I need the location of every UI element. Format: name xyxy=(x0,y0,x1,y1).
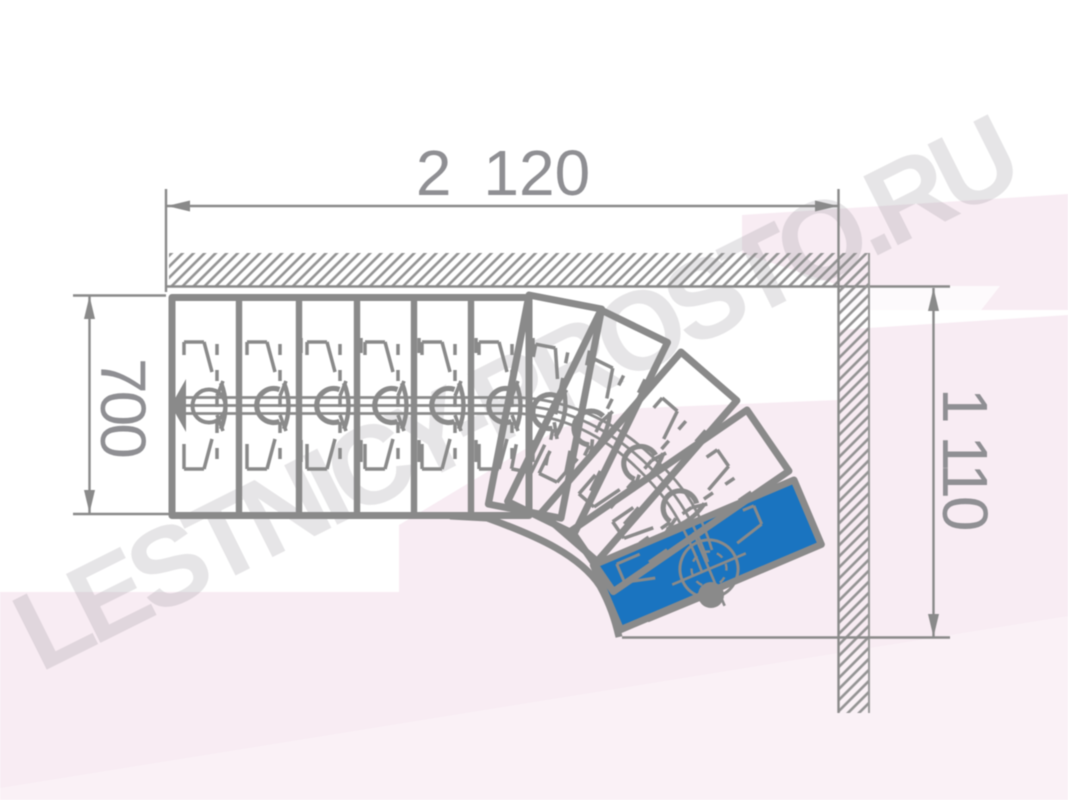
svg-text:700: 700 xyxy=(87,358,159,457)
svg-text:2 120: 2 120 xyxy=(416,137,590,209)
svg-text:1 110: 1 110 xyxy=(929,388,1001,530)
